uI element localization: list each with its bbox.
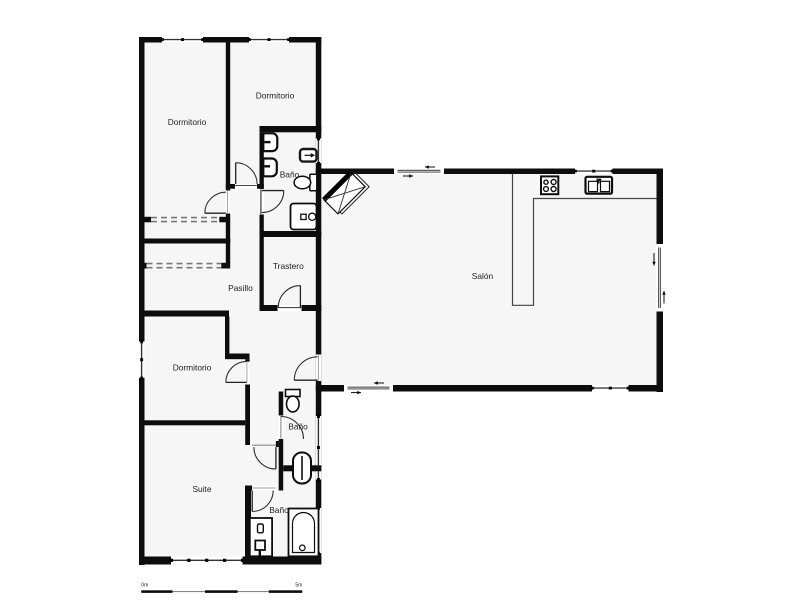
svg-text:Pasillo: Pasillo (228, 283, 253, 293)
svg-text:0m: 0m (141, 583, 148, 589)
svg-text:Dormitorio: Dormitorio (168, 117, 207, 127)
svg-text:Trastero: Trastero (273, 261, 304, 271)
svg-text:Suite: Suite (192, 484, 211, 494)
svg-text:Salón: Salón (472, 271, 494, 281)
svg-text:Dormitorio: Dormitorio (173, 362, 212, 372)
svg-text:Baño: Baño (280, 169, 300, 179)
svg-text:5m: 5m (295, 583, 302, 589)
svg-text:Dormitorio: Dormitorio (256, 90, 295, 100)
svg-text:Baño: Baño (288, 421, 308, 431)
svg-text:Baño: Baño (269, 505, 289, 515)
